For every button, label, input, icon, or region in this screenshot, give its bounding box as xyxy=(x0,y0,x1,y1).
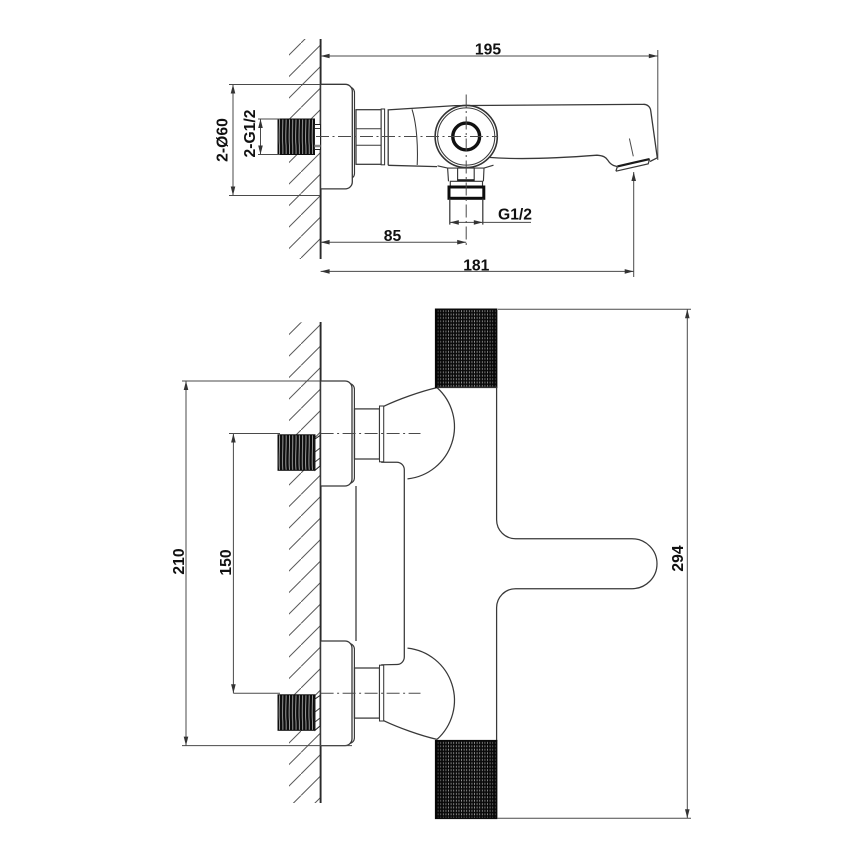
svg-text:181: 181 xyxy=(463,258,489,275)
svg-text:G1/2: G1/2 xyxy=(498,207,532,224)
svg-text:210: 210 xyxy=(171,548,188,574)
svg-text:150: 150 xyxy=(218,549,235,575)
svg-text:195: 195 xyxy=(475,42,501,59)
svg-text:2-G1/2: 2-G1/2 xyxy=(242,109,259,157)
svg-text:85: 85 xyxy=(384,228,402,245)
svg-text:294: 294 xyxy=(670,545,687,571)
svg-text:2-Ø60: 2-Ø60 xyxy=(215,118,232,162)
